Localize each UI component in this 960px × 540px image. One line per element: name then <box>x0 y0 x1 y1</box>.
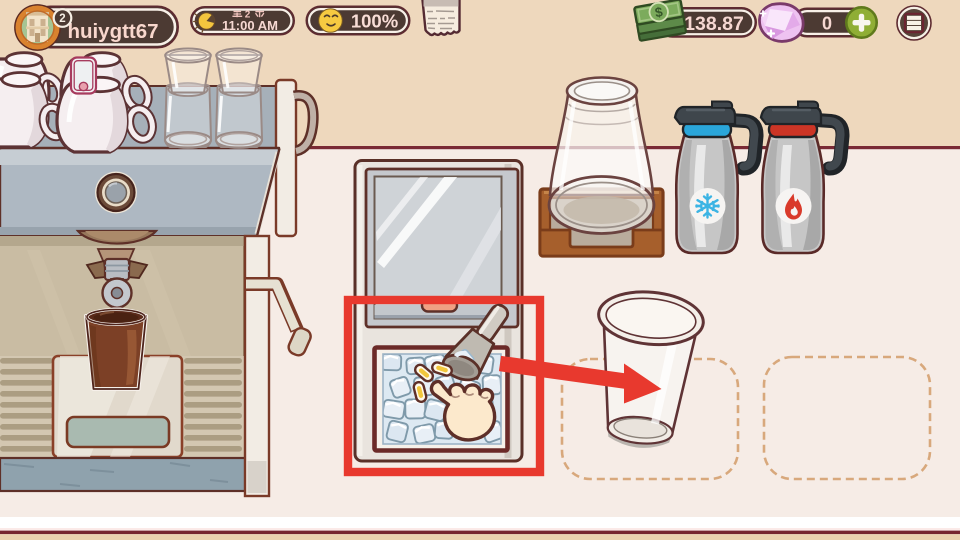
svg-text:0: 0 <box>822 14 832 34</box>
svg-text:huiygtt67: huiygtt67 <box>67 20 158 43</box>
svg-text:100%: 100% <box>351 11 398 32</box>
svg-text:138.87: 138.87 <box>684 13 744 35</box>
svg-text:2: 2 <box>59 13 65 25</box>
svg-text:11:00 AM: 11:00 AM <box>222 18 278 33</box>
